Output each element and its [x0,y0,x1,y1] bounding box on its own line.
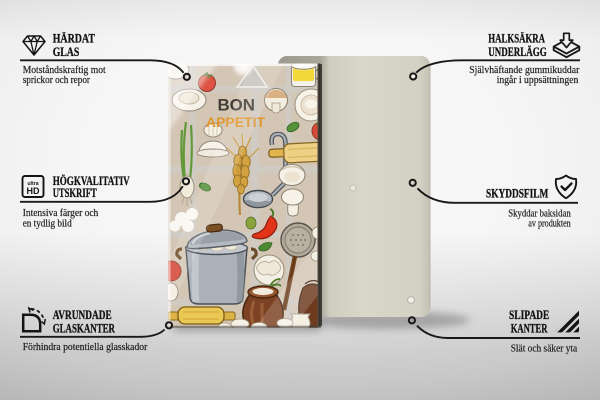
svg-text:GLAS: GLAS [53,45,80,59]
svg-text:sprickor och repor: sprickor och repor [23,75,91,86]
svg-text:ingår i uppsättningen: ingår i uppsättningen [497,75,579,86]
svg-text:GLASKANTER: GLASKANTER [53,321,115,335]
svg-text:SLIPADE: SLIPADE [509,308,549,322]
svg-text:HALKSÄKRA: HALKSÄKRA [488,32,545,46]
svg-text:Förhindra potentiella glasskad: Förhindra potentiella glasskador [23,342,148,353]
svg-text:HÄRDAT: HÄRDAT [53,32,95,46]
svg-text:av produkten: av produkten [528,219,571,230]
svg-text:KANTER: KANTER [511,322,548,336]
svg-text:AVRUNDADE: AVRUNDADE [53,308,112,322]
svg-text:UTSKRIFT: UTSKRIFT [53,186,97,200]
svg-text:en tydlig bild: en tydlig bild [23,218,73,229]
svg-text:UNDERLÄGG: UNDERLÄGG [488,45,547,59]
svg-text:SKYDDSFILM: SKYDDSFILM [486,186,549,200]
svg-text:Slät och säker yta: Slät och säker yta [511,344,578,355]
